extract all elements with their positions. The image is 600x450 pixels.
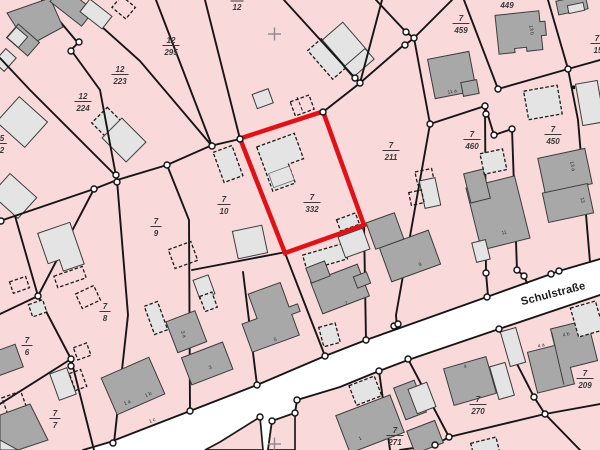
svg-text:449: 449 — [499, 1, 514, 10]
svg-text:209: 209 — [577, 381, 592, 390]
svg-text:7: 7 — [25, 336, 30, 345]
svg-text:8: 8 — [103, 314, 108, 323]
svg-text:223: 223 — [112, 77, 127, 86]
svg-text:7: 7 — [310, 193, 315, 202]
svg-text:7: 7 — [222, 195, 227, 204]
svg-text:7: 7 — [393, 426, 398, 435]
svg-text:7: 7 — [551, 125, 556, 134]
svg-text:7: 7 — [459, 14, 464, 23]
svg-text:12: 12 — [233, 3, 242, 12]
svg-text:332: 332 — [305, 205, 319, 214]
svg-text:270: 270 — [470, 407, 485, 416]
svg-text:295: 295 — [163, 48, 178, 57]
svg-text:7: 7 — [595, 34, 600, 43]
svg-text:224: 224 — [75, 104, 90, 113]
svg-text:12: 12 — [116, 65, 125, 74]
svg-text:12: 12 — [79, 92, 88, 101]
svg-text:7: 7 — [154, 217, 159, 226]
svg-text:15: 15 — [594, 46, 600, 55]
svg-text:10: 10 — [220, 207, 229, 216]
svg-text:9: 9 — [154, 229, 159, 238]
svg-text:211: 211 — [384, 153, 398, 162]
svg-text:450: 450 — [545, 137, 560, 146]
svg-text:7: 7 — [470, 130, 475, 139]
svg-text:12: 12 — [167, 36, 176, 45]
svg-text:5: 5 — [0, 134, 5, 143]
svg-text:7: 7 — [389, 141, 394, 150]
svg-text:2: 2 — [0, 146, 5, 155]
svg-text:271: 271 — [387, 438, 402, 447]
svg-text:460: 460 — [464, 142, 479, 151]
svg-text:459: 459 — [453, 26, 468, 35]
svg-text:7: 7 — [53, 409, 58, 418]
svg-text:7: 7 — [476, 395, 481, 404]
svg-text:7: 7 — [583, 369, 588, 378]
svg-text:6: 6 — [25, 348, 30, 357]
svg-text:7: 7 — [103, 302, 108, 311]
svg-text:7: 7 — [53, 421, 58, 430]
